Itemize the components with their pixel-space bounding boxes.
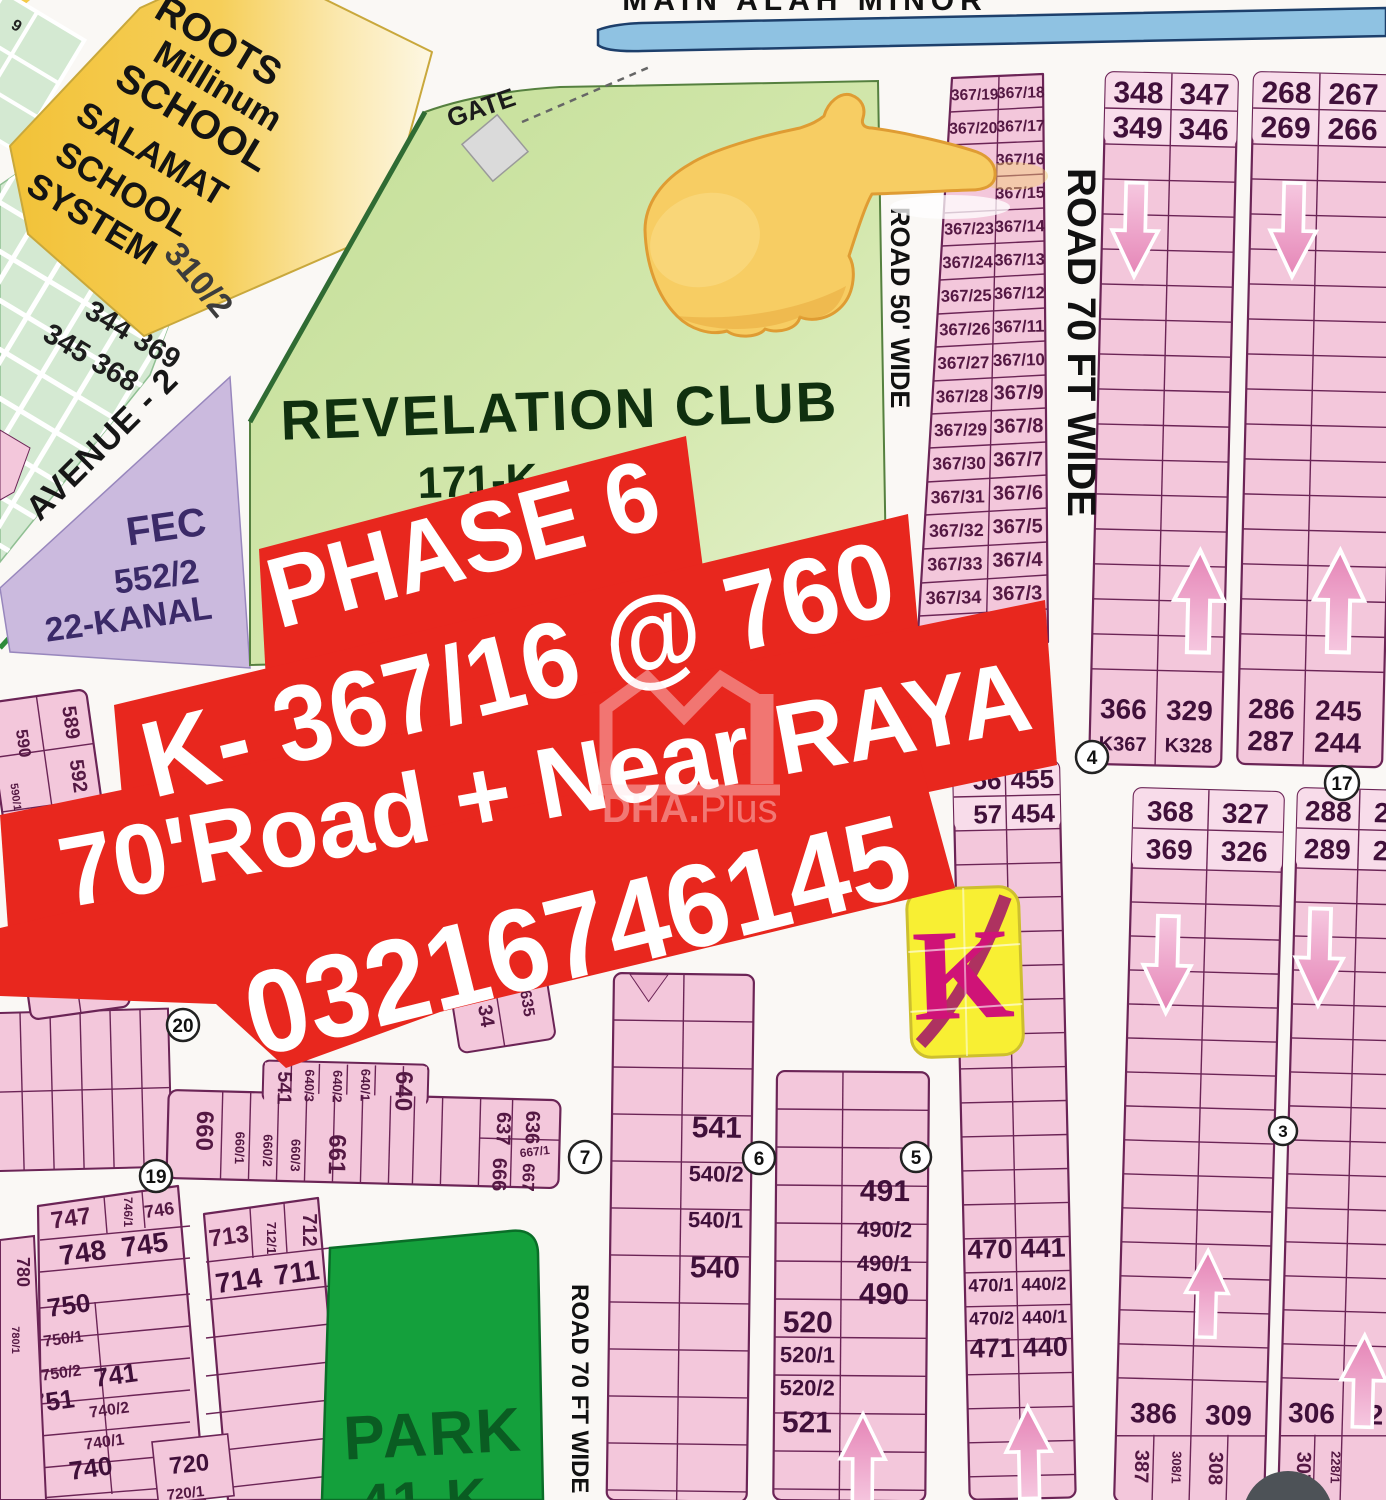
svg-text:592: 592 [65, 758, 91, 794]
svg-text:660: 660 [190, 1111, 218, 1152]
svg-text:521: 521 [782, 1406, 832, 1439]
svg-text:640/1: 640/1 [358, 1069, 374, 1102]
svg-text:490/1: 490/1 [857, 1251, 912, 1276]
svg-text:PARK: PARK [342, 1395, 524, 1473]
svg-text:367/10: 367/10 [993, 350, 1045, 370]
svg-text:367/12: 367/12 [994, 283, 1045, 303]
svg-text:367/27: 367/27 [937, 353, 989, 373]
svg-text:309: 309 [1205, 1399, 1253, 1431]
svg-text:711: 711 [272, 1254, 321, 1291]
svg-text:780: 780 [13, 1257, 33, 1287]
svg-text:712: 712 [298, 1213, 320, 1246]
svg-text:327: 327 [1222, 797, 1270, 829]
svg-text:367/19: 367/19 [951, 86, 999, 104]
svg-text:660/3: 660/3 [288, 1139, 304, 1172]
svg-text:367/6: 367/6 [993, 482, 1043, 505]
svg-text:6: 6 [754, 1149, 765, 1170]
svg-text:520/1: 520/1 [780, 1342, 835, 1367]
svg-text:308: 308 [1204, 1452, 1227, 1486]
svg-text:366: 366 [1100, 693, 1147, 725]
svg-text:471: 471 [969, 1333, 1015, 1364]
svg-text:660/2: 660/2 [260, 1134, 276, 1167]
svg-text:520: 520 [783, 1306, 833, 1339]
svg-text:DHA.Plus: DHA.Plus [602, 787, 778, 831]
svg-text:540: 540 [690, 1251, 741, 1285]
svg-text:367/31: 367/31 [931, 486, 986, 507]
svg-text:714: 714 [213, 1262, 264, 1299]
svg-text:720/1: 720/1 [166, 1483, 205, 1500]
svg-text:440: 440 [1022, 1332, 1068, 1363]
svg-text:266: 266 [1327, 113, 1378, 147]
svg-text:590: 590 [12, 728, 35, 759]
svg-text:286: 286 [1248, 693, 1295, 725]
svg-text:740: 740 [67, 1450, 114, 1486]
svg-text:369: 369 [1146, 833, 1194, 865]
svg-text:367/4: 367/4 [992, 549, 1043, 572]
svg-text:640/3: 640/3 [302, 1069, 318, 1102]
svg-text:245: 245 [1374, 797, 1386, 829]
svg-text:17: 17 [1331, 774, 1352, 795]
svg-text:667: 667 [518, 1163, 538, 1192]
svg-text:326: 326 [1220, 835, 1268, 867]
svg-text:329: 329 [1166, 695, 1213, 727]
svg-text:386: 386 [1130, 1397, 1178, 1429]
svg-text:367/26: 367/26 [939, 319, 991, 339]
svg-text:368: 368 [1147, 795, 1195, 827]
svg-text:491: 491 [860, 1175, 910, 1208]
svg-text:5: 5 [911, 1148, 922, 1169]
svg-text:367/9: 367/9 [993, 382, 1043, 405]
svg-text:244: 244 [1314, 727, 1362, 759]
svg-text:308/1: 308/1 [1169, 1451, 1185, 1484]
svg-text:306: 306 [1288, 1397, 1336, 1429]
svg-text:287: 287 [1247, 725, 1294, 757]
svg-text:367/20: 367/20 [949, 120, 998, 138]
svg-text:367/14: 367/14 [995, 217, 1045, 236]
svg-text:640/2: 640/2 [330, 1070, 346, 1103]
svg-text:454: 454 [1011, 798, 1056, 829]
svg-text:441: 441 [1020, 1233, 1066, 1264]
svg-text:269: 269 [1260, 111, 1311, 145]
svg-text:367/30: 367/30 [932, 453, 986, 474]
svg-text:367/29: 367/29 [934, 419, 987, 440]
svg-text:640: 640 [389, 1071, 417, 1112]
svg-text:470/1: 470/1 [968, 1275, 1013, 1296]
svg-text:267: 267 [1328, 78, 1379, 112]
svg-text:490: 490 [859, 1278, 909, 1311]
svg-text:490/2: 490/2 [857, 1217, 912, 1242]
svg-text:ROAD 70 FT WIDE: ROAD 70 FT WIDE [1059, 168, 1103, 517]
svg-text:440/2: 440/2 [1021, 1274, 1066, 1295]
svg-text:367/8: 367/8 [993, 415, 1043, 438]
svg-text:741: 741 [92, 1357, 139, 1393]
svg-text:19: 19 [145, 1167, 166, 1188]
svg-text:268: 268 [1261, 76, 1312, 110]
svg-text:636: 636 [520, 1111, 543, 1145]
svg-text:713: 713 [207, 1220, 250, 1252]
svg-text:ROAD 70 FT WIDE: ROAD 70 FT WIDE [566, 1284, 593, 1493]
svg-text:780/1: 780/1 [9, 1326, 21, 1354]
svg-text:348: 348 [1113, 76, 1164, 110]
svg-text:367/11: 367/11 [994, 317, 1045, 337]
svg-text:367/18: 367/18 [997, 84, 1045, 102]
svg-text:20: 20 [172, 1016, 193, 1037]
svg-text:4: 4 [1087, 748, 1098, 769]
svg-text:745: 745 [119, 1226, 170, 1263]
svg-text:367/7: 367/7 [993, 448, 1043, 471]
svg-text:MAIN ALAH MINOR: MAIN ALAH MINOR [622, 0, 988, 17]
svg-text:746/1: 746/1 [121, 1197, 135, 1227]
svg-text:747: 747 [49, 1202, 92, 1234]
svg-text:367/13: 367/13 [994, 251, 1045, 270]
svg-text:666: 666 [487, 1158, 510, 1192]
svg-text:367/32: 367/32 [929, 520, 984, 541]
svg-text:367/3: 367/3 [992, 582, 1042, 605]
svg-text:748: 748 [57, 1234, 108, 1271]
svg-text:367/34: 367/34 [925, 586, 982, 608]
svg-text:289: 289 [1304, 833, 1352, 865]
svg-text:367/17: 367/17 [996, 118, 1045, 136]
svg-text:540/2: 540/2 [689, 1161, 744, 1187]
svg-text:7: 7 [580, 1148, 591, 1169]
svg-text:57: 57 [973, 799, 1003, 830]
svg-text:245: 245 [1315, 695, 1362, 727]
svg-text:367/24: 367/24 [942, 253, 994, 272]
svg-text:3: 3 [1278, 1122, 1287, 1141]
svg-text:470: 470 [967, 1234, 1013, 1265]
svg-text:347: 347 [1179, 78, 1230, 112]
svg-text:750: 750 [45, 1287, 92, 1323]
svg-text:470/2: 470/2 [969, 1308, 1014, 1329]
svg-text:720: 720 [168, 1449, 211, 1480]
svg-text:367/25: 367/25 [941, 286, 992, 306]
svg-text:346: 346 [1178, 113, 1229, 147]
svg-text:541: 541 [692, 1111, 743, 1145]
svg-text:589: 589 [57, 705, 83, 741]
svg-text:712/1: 712/1 [264, 1222, 279, 1255]
svg-text:41-K: 41-K [358, 1466, 491, 1500]
svg-text:367/28: 367/28 [936, 386, 989, 407]
svg-text:661: 661 [323, 1134, 351, 1175]
svg-text:367/23: 367/23 [944, 220, 994, 239]
svg-text:349: 349 [1112, 111, 1163, 145]
svg-text:746: 746 [143, 1198, 176, 1222]
svg-text:ROAD 50' WIDE: ROAD 50' WIDE [885, 207, 915, 408]
svg-text:367/33: 367/33 [927, 554, 983, 575]
svg-text:387: 387 [1130, 1449, 1153, 1483]
svg-text:540/1: 540/1 [688, 1207, 743, 1233]
svg-text:637: 637 [491, 1112, 514, 1146]
svg-text:660/1: 660/1 [232, 1131, 248, 1164]
svg-text:244: 244 [1372, 835, 1386, 867]
svg-text:367/5: 367/5 [992, 515, 1042, 538]
svg-text:228/1: 228/1 [1328, 1451, 1344, 1484]
svg-text:K328: K328 [1164, 735, 1212, 758]
svg-text:440/1: 440/1 [1022, 1307, 1067, 1328]
svg-text:520/2: 520/2 [780, 1375, 835, 1400]
